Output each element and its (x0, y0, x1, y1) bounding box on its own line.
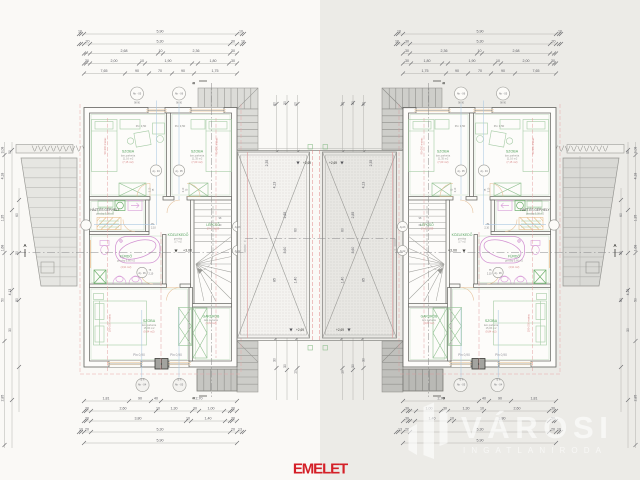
svg-text:30: 30 (231, 417, 235, 421)
svg-text:2,35: 2,35 (265, 160, 269, 167)
svg-text:10: 10 (239, 30, 243, 34)
svg-text:17×17,6/29: 17×17,6/29 (207, 228, 220, 231)
svg-text:(7,00 m2): (7,00 m2) (437, 160, 448, 164)
svg-text:4,18: 4,18 (634, 173, 638, 180)
svg-text:10: 10 (140, 59, 144, 63)
svg-text:30: 30 (405, 49, 409, 53)
svg-text:90: 90 (138, 397, 142, 401)
svg-text:60: 60 (15, 213, 19, 217)
svg-text:4,13: 4,13 (362, 182, 366, 189)
svg-text:FÜRDŐ: FÜRDŐ (120, 254, 132, 259)
svg-text:90×200 matrac: 90×200 matrac (532, 137, 535, 154)
svg-text:1,81: 1,81 (531, 397, 538, 401)
svg-text:greslap 5,08 m2: greslap 5,08 m2 (526, 213, 545, 216)
svg-text:greslap 5,08 m2: greslap 5,08 m2 (96, 213, 115, 216)
svg-text:30: 30 (405, 40, 409, 44)
svg-text:SZOBA: SZOBA (506, 150, 519, 154)
svg-text:1,68: 1,68 (634, 245, 638, 252)
svg-text:75 R: 75 R (459, 380, 464, 382)
svg-text:30: 30 (231, 49, 235, 53)
svg-text:VÁROSI: VÁROSI (461, 410, 613, 445)
svg-text:30: 30 (273, 358, 277, 362)
svg-text:KÖZLEKEDŐ: KÖZLEKEDŐ (452, 232, 473, 237)
svg-text:Pm 3,50: Pm 3,50 (455, 124, 466, 128)
svg-text:10: 10 (341, 102, 345, 106)
svg-text:SZOBA: SZOBA (143, 319, 156, 323)
svg-text:15,06 m2: 15,06 m2 (144, 326, 155, 330)
svg-text:2,10: 2,10 (455, 187, 457, 192)
svg-text:(9,84 m2): (9,84 m2) (485, 330, 496, 334)
svg-text:90×200 matrac: 90×200 matrac (104, 137, 107, 154)
svg-text:40: 40 (482, 397, 486, 401)
svg-text:Ab - 04: Ab - 04 (138, 383, 147, 387)
svg-text:75 R: 75 R (496, 380, 501, 382)
svg-text:30: 30 (351, 364, 355, 368)
svg-text:30: 30 (273, 102, 277, 106)
svg-text:4,13: 4,13 (8, 289, 12, 296)
svg-text:2,85: 2,85 (634, 395, 638, 402)
svg-text:10: 10 (186, 417, 190, 421)
svg-text:3,08: 3,08 (634, 147, 638, 154)
svg-text:INGATLANIRODA: INGATLANIRODA (463, 446, 607, 455)
svg-text:80: 80 (619, 298, 623, 302)
svg-text:30: 30 (405, 59, 409, 63)
svg-text:1,30: 1,30 (171, 407, 178, 411)
svg-text:75 R: 75 R (177, 380, 182, 382)
svg-text:50: 50 (8, 150, 12, 154)
svg-text:2,85: 2,85 (351, 212, 355, 219)
svg-text:Pm 3,50: Pm 3,50 (494, 124, 505, 128)
svg-text:13: 13 (398, 428, 402, 432)
svg-text:98 90: 98 90 (500, 103, 506, 105)
svg-text:GARDRÓB: GARDRÓB (203, 314, 220, 319)
svg-text:Ab - 06: Ab - 06 (175, 92, 184, 96)
svg-text:4,13: 4,13 (273, 182, 277, 189)
svg-text:70: 70 (158, 69, 162, 73)
svg-text:1,00: 1,00 (208, 407, 215, 411)
svg-text:20: 20 (85, 428, 89, 432)
svg-text:1,80: 1,80 (210, 59, 217, 63)
svg-text:30: 30 (231, 59, 235, 63)
svg-text:(4,91 m2): (4,91 m2) (121, 266, 132, 269)
svg-text:greslap 5,66 m2: greslap 5,66 m2 (117, 260, 136, 263)
svg-text:180×200 matrac: 180×200 matrac (109, 313, 112, 332)
svg-text:2,35: 2,35 (369, 160, 373, 167)
svg-text:5,30: 5,30 (157, 40, 164, 44)
svg-text:1,90: 1,90 (469, 59, 476, 63)
svg-text:15,06 m2: 15,06 m2 (486, 326, 497, 330)
svg-text:10: 10 (294, 370, 298, 374)
svg-text:Ab - 04: Ab - 04 (494, 383, 503, 387)
svg-text:10: 10 (159, 49, 163, 53)
svg-text:10: 10 (78, 30, 82, 34)
svg-text:3,08: 3,08 (1, 147, 5, 154)
svg-text:98 90: 98 90 (176, 103, 182, 105)
svg-text:+2,69: +2,69 (296, 328, 304, 332)
svg-text:30: 30 (362, 102, 366, 106)
svg-text:10: 10 (341, 370, 345, 374)
svg-text:1,75: 1,75 (422, 69, 429, 73)
svg-text:2,00: 2,00 (523, 59, 530, 63)
svg-text:1,40: 1,40 (205, 417, 212, 421)
svg-text:11,35 m2: 11,35 m2 (192, 157, 203, 161)
svg-text:1,80: 1,80 (424, 59, 431, 63)
svg-text:2,70: 2,70 (196, 397, 203, 401)
svg-text:Pm 3,50: Pm 3,50 (136, 124, 147, 128)
svg-text:30: 30 (405, 407, 409, 411)
svg-text:2,10: 2,10 (149, 273, 154, 276)
svg-text:1,90: 1,90 (165, 59, 172, 63)
svg-text:30: 30 (15, 251, 19, 255)
svg-text:Ab - 05: Ab - 05 (175, 383, 184, 387)
svg-text:180×200 matrac: 180×200 matrac (528, 313, 531, 332)
svg-text:Aj-02: Aj-02 (235, 250, 241, 253)
svg-text:13: 13 (238, 428, 242, 432)
svg-text:1,35: 1,35 (1, 215, 5, 222)
svg-text:90×200 matrac: 90×200 matrac (421, 137, 424, 154)
svg-text:1,40: 1,40 (294, 277, 298, 284)
svg-text:2,60: 2,60 (120, 407, 127, 411)
svg-text:85: 85 (362, 278, 366, 282)
svg-text:(4,82 m2): (4,82 m2) (206, 322, 217, 325)
svg-text:30: 30 (351, 101, 355, 105)
svg-text:10: 10 (395, 40, 399, 44)
svg-text:+2,69: +2,69 (303, 161, 311, 165)
svg-text:(4,91 m2): (4,91 m2) (509, 266, 520, 269)
svg-text:Aj-03: Aj-03 (400, 226, 406, 229)
svg-text:1,75: 1,75 (212, 69, 219, 73)
svg-text:Pm 3,50: Pm 3,50 (175, 124, 186, 128)
svg-text:50: 50 (1, 298, 5, 302)
svg-text:11,16 m2: 11,16 m2 (123, 157, 134, 161)
svg-text:5,30: 5,30 (477, 40, 484, 44)
svg-text:30: 30 (8, 328, 12, 332)
svg-text:75 R: 75 R (140, 380, 145, 382)
svg-text:10: 10 (450, 417, 454, 421)
svg-text:LÉPCSŐ: LÉPCSŐ (420, 222, 434, 227)
svg-text:,20: ,20 (551, 40, 556, 44)
svg-text:EMELET: EMELET (293, 461, 348, 478)
svg-text:5,90: 5,90 (477, 30, 484, 34)
svg-text:2,10: 2,10 (484, 227, 489, 230)
svg-text:+2,69: +2,69 (336, 328, 344, 332)
svg-text:90: 90 (135, 69, 139, 73)
svg-text:GARDRÓB: GARDRÓB (421, 314, 438, 319)
svg-text:B: B (192, 81, 196, 84)
svg-text:Ab - 05: Ab - 05 (133, 92, 142, 96)
svg-text:SZOBA: SZOBA (191, 150, 204, 154)
svg-text:50: 50 (626, 150, 630, 154)
svg-text:SZOBA: SZOBA (437, 150, 450, 154)
svg-text:7,65: 7,65 (533, 69, 540, 73)
svg-text:5,90: 5,90 (157, 439, 164, 443)
svg-text:FÜRDŐ: FÜRDŐ (508, 254, 520, 259)
svg-text:3,7 m2: 3,7 m2 (458, 241, 466, 244)
svg-text:30: 30 (85, 407, 89, 411)
svg-text:2,36: 2,36 (193, 49, 200, 53)
svg-text:4,18: 4,18 (1, 173, 5, 180)
svg-text:10: 10 (156, 407, 160, 411)
svg-text:1,35: 1,35 (634, 215, 638, 222)
svg-text:2,10: 2,10 (183, 187, 185, 192)
svg-text:90: 90 (455, 69, 459, 73)
svg-text:1,40: 1,40 (341, 277, 345, 284)
svg-text:50: 50 (634, 298, 638, 302)
svg-text:60: 60 (294, 228, 298, 232)
svg-text:30: 30 (231, 40, 235, 44)
svg-text:2,36: 2,36 (441, 49, 448, 53)
svg-text:30: 30 (193, 407, 197, 411)
svg-text:11,16 m2: 11,16 m2 (507, 157, 518, 161)
svg-text:Aj - 05: Aj - 05 (457, 170, 465, 173)
svg-text:2,85: 2,85 (1, 395, 5, 402)
svg-text:10: 10 (294, 102, 298, 106)
svg-text:HÁZT.ÉS GÉP.HELY: HÁZT.ÉS GÉP.HELY (90, 207, 120, 212)
svg-text:Aj - 05: Aj - 05 (175, 170, 183, 173)
svg-text:1,81: 1,81 (103, 397, 110, 401)
svg-text:30: 30 (619, 251, 623, 255)
svg-text:2,68: 2,68 (121, 49, 128, 53)
svg-text:20: 20 (231, 428, 235, 432)
svg-text:10: 10 (241, 40, 245, 44)
svg-text:30: 30 (231, 407, 235, 411)
svg-text:60: 60 (341, 228, 345, 232)
svg-text:90: 90 (181, 69, 185, 73)
svg-text:Pln 0,90: Pln 0,90 (458, 353, 470, 357)
svg-text:30: 30 (405, 417, 409, 421)
svg-text:70: 70 (478, 69, 482, 73)
svg-text:30: 30 (85, 417, 89, 421)
svg-text:+2,69: +2,69 (329, 161, 337, 165)
svg-text:(7,15 m2): (7,15 m2) (506, 160, 517, 164)
svg-text:10: 10 (558, 30, 562, 34)
svg-text:10: 10 (397, 30, 401, 34)
svg-text:Aj - 06: Aj - 06 (494, 272, 502, 275)
svg-text:HÁZT.ÉS GÉP.HELY: HÁZT.ÉS GÉP.HELY (520, 207, 550, 212)
svg-text:,20: ,20 (85, 40, 90, 44)
svg-text:8,60: 8,60 (351, 247, 355, 254)
svg-text:Pln 0,90: Pln 0,90 (495, 353, 507, 357)
svg-text:greslap 5,66 m2: greslap 5,66 m2 (505, 260, 524, 263)
svg-text:(4,82 m2): (4,82 m2) (424, 322, 435, 325)
svg-text:30: 30 (283, 364, 287, 368)
svg-text:(9,84 m2): (9,84 m2) (143, 330, 154, 334)
svg-text:90: 90 (498, 397, 502, 401)
svg-text:Ab - 06: Ab - 06 (457, 92, 466, 96)
svg-text:60: 60 (619, 213, 623, 217)
svg-text:8,60: 8,60 (283, 247, 287, 254)
svg-text:KÖZLEKEDŐ: KÖZLEKEDŐ (168, 232, 189, 237)
svg-text:30: 30 (283, 101, 287, 105)
svg-text:11,35 m2: 11,35 m2 (438, 157, 449, 161)
svg-text:90: 90 (501, 69, 505, 73)
svg-text:SZOBA: SZOBA (122, 150, 135, 154)
svg-text:3,7 m2: 3,7 m2 (174, 241, 182, 244)
svg-text:5,90: 5,90 (157, 30, 164, 34)
svg-text:10: 10 (478, 49, 482, 53)
svg-text:2,00: 2,00 (111, 59, 118, 63)
svg-text:7,65: 7,65 (101, 69, 108, 73)
svg-text:2,10: 2,10 (150, 187, 152, 192)
svg-text:30: 30 (85, 59, 89, 63)
svg-text:Ab - 05: Ab - 05 (457, 383, 466, 387)
svg-text:+3,00: +3,00 (448, 249, 457, 253)
svg-text:+3,00: +3,00 (183, 249, 192, 253)
svg-text:2,85: 2,85 (283, 212, 287, 219)
svg-text:SZOBA: SZOBA (485, 319, 498, 323)
svg-text:(7,00 m2): (7,00 m2) (191, 160, 202, 164)
svg-text:17×17,6/29: 17×17,6/29 (421, 228, 434, 231)
svg-text:20: 20 (405, 428, 409, 432)
svg-text:1,68: 1,68 (1, 245, 5, 252)
svg-text:98 90: 98 90 (458, 103, 464, 105)
svg-text:10: 10 (496, 59, 500, 63)
svg-text:Aj - 04: Aj - 04 (152, 170, 160, 173)
svg-text:Aj - 04: Aj - 04 (480, 170, 488, 173)
svg-text:Ab - 05: Ab - 05 (499, 92, 508, 96)
svg-text:Aj - 06: Aj - 06 (138, 272, 146, 275)
svg-text:2,70: 2,70 (438, 397, 445, 401)
svg-text:30: 30 (551, 59, 555, 63)
svg-text:B: B (442, 81, 446, 84)
svg-text:Pln 0,90: Pln 0,90 (170, 353, 182, 357)
svg-text:98 90: 98 90 (134, 103, 140, 105)
svg-text:2,10: 2,10 (489, 187, 491, 192)
svg-text:Aj-02: Aj-02 (400, 250, 406, 253)
svg-text:Aj-03: Aj-03 (235, 226, 241, 229)
svg-text:80: 80 (15, 298, 19, 302)
svg-text:4,13: 4,13 (626, 289, 630, 296)
svg-text:2,10: 2,10 (151, 227, 156, 230)
svg-text:(7,15 m2): (7,15 m2) (122, 160, 133, 164)
svg-text:3,80: 3,80 (135, 417, 142, 421)
svg-text:2,68: 2,68 (513, 49, 520, 53)
svg-text:10: 10 (79, 428, 83, 432)
svg-text:85: 85 (273, 278, 277, 282)
svg-text:30: 30 (626, 328, 630, 332)
svg-text:40: 40 (154, 397, 158, 401)
svg-text:2,10: 2,10 (487, 273, 492, 276)
svg-text:5,30: 5,30 (157, 428, 164, 432)
svg-text:30: 30 (362, 358, 366, 362)
svg-text:90×200 matrac: 90×200 matrac (216, 137, 219, 154)
svg-text:Pln 0,90: Pln 0,90 (133, 353, 145, 357)
